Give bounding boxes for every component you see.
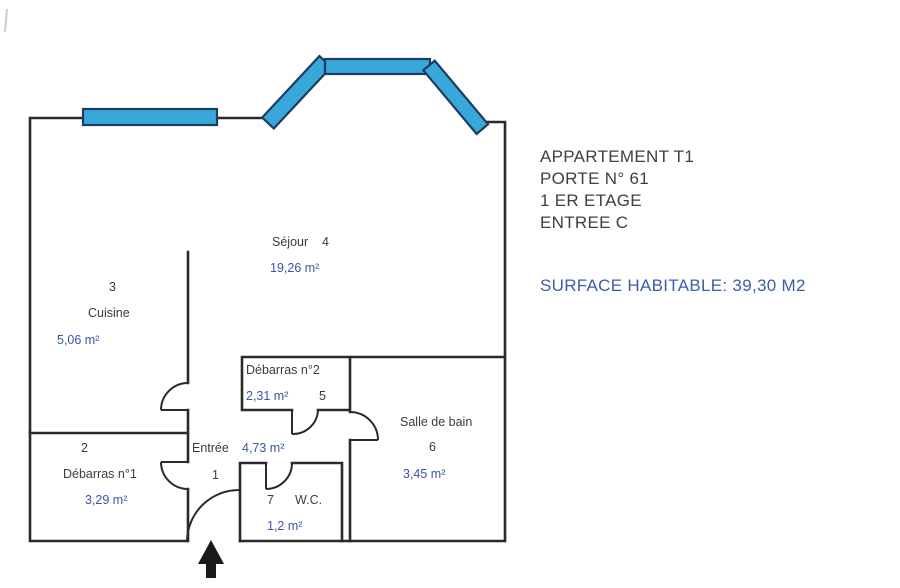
window-bay-right	[423, 61, 488, 134]
room-name-debarras1: Débarras n°1	[63, 467, 137, 481]
room-area-debarras2: 2,31 m²	[246, 389, 288, 403]
room-number-wc: 7	[267, 493, 274, 507]
room-number-entree: 1	[212, 468, 219, 482]
room-number-salle-de-bain: 6	[429, 440, 436, 454]
room-name-sejour: Séjour	[272, 235, 308, 249]
apartment-info: APPARTEMENT T1 PORTE N° 61 1 ER ETAGE EN…	[540, 146, 694, 234]
room-name-salle-de-bain: Salle de bain	[400, 415, 472, 429]
room-area-sejour: 19,26 m²	[270, 261, 319, 275]
apartment-info-line-2: PORTE N° 61	[540, 168, 694, 190]
room-name-entree: Entrée	[192, 441, 229, 455]
entrance-arrow-icon	[198, 540, 224, 578]
apartment-info-line-3: 1 ER ETAGE	[540, 190, 694, 212]
room-area-cuisine: 5,06 m²	[57, 333, 99, 347]
window-bay-top	[325, 59, 430, 74]
window-bay-left	[262, 56, 331, 128]
surface-habitable-line: SURFACE HABITABLE: 39,30 M2	[540, 276, 806, 296]
apartment-info-line-1: APPARTEMENT T1	[540, 146, 694, 168]
room-number-sejour: 4	[322, 235, 329, 249]
room-area-debarras1: 3,29 m²	[85, 493, 127, 507]
room-area-entree: 4,73 m²	[242, 441, 284, 455]
room-area-wc: 1,2 m²	[267, 519, 302, 533]
room-name-cuisine: Cuisine	[88, 306, 130, 320]
floorplan-page: Séjour 4 19,26 m² 3 Cuisine 5,06 m² Déba…	[0, 0, 900, 588]
scan-artifact	[5, 9, 7, 32]
window-top-left	[83, 109, 217, 125]
room-number-debarras2: 5	[319, 389, 326, 403]
room-number-cuisine: 3	[109, 280, 116, 294]
room-name-debarras2: Débarras n°2	[246, 363, 320, 377]
apartment-info-line-4: ENTREE C	[540, 212, 694, 234]
room-name-wc: W.C.	[295, 493, 322, 507]
room-area-salle-de-bain: 3,45 m²	[403, 467, 445, 481]
room-number-debarras1: 2	[81, 441, 88, 455]
door-arcs	[161, 383, 378, 541]
